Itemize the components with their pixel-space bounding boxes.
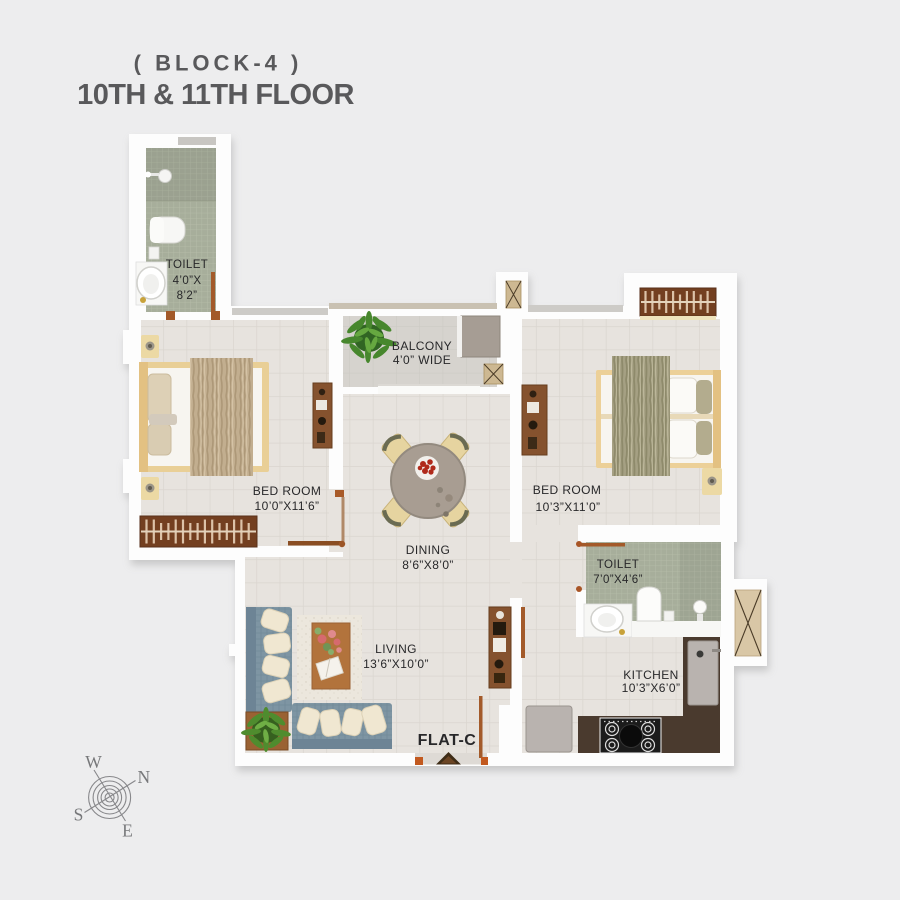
svg-text:KITCHEN: KITCHEN <box>623 668 678 682</box>
svg-text:FLAT-C: FLAT-C <box>418 732 477 749</box>
svg-text:DINING: DINING <box>406 543 450 557</box>
svg-text:10’3”X6’0”: 10’3”X6’0” <box>622 681 681 695</box>
svg-text:TOILET: TOILET <box>166 259 208 271</box>
svg-text:10’0”X11’6”: 10’0”X11’6” <box>255 499 320 513</box>
svg-text:13’6”X10’0”: 13’6”X10’0” <box>363 657 429 671</box>
svg-text:10TH & 11TH FLOOR: 10TH & 11TH FLOOR <box>77 79 354 111</box>
svg-text:10’3”X11’0”: 10’3”X11’0” <box>536 500 601 514</box>
svg-text:LIVING: LIVING <box>375 642 417 656</box>
svg-text:7’0”X4’6”: 7’0”X4’6” <box>593 574 643 586</box>
svg-text:BED ROOM: BED ROOM <box>253 484 322 498</box>
svg-text:W: W <box>85 752 102 772</box>
svg-text:N: N <box>137 767 150 787</box>
svg-text:BED ROOM: BED ROOM <box>533 483 602 497</box>
svg-text:4’0”X: 4’0”X <box>173 275 202 287</box>
svg-text:S: S <box>74 805 84 825</box>
svg-text:8’6”X8’0”: 8’6”X8’0” <box>402 558 454 572</box>
svg-text:BALCONY: BALCONY <box>392 339 452 353</box>
svg-text:4’0” WIDE: 4’0” WIDE <box>393 353 451 367</box>
svg-text:8’2”: 8’2” <box>177 290 198 302</box>
svg-text:( BLOCK-4 ): ( BLOCK-4 ) <box>134 51 303 76</box>
svg-text:E: E <box>122 821 133 841</box>
svg-text:TOILET: TOILET <box>597 559 639 571</box>
